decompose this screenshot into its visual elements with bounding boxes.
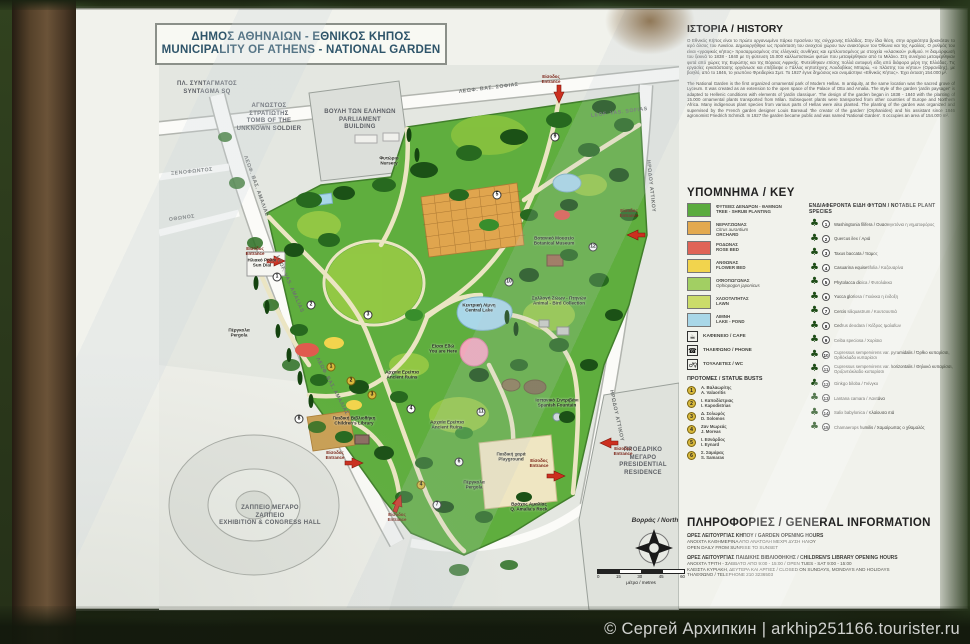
- tree-icon: [809, 364, 820, 374]
- park-information-sign: ΔΗΜΟΣ ΑΘΗΝΑΙΩΝ - ΕΘΝΙΚΟΣ ΚΗΠΟΣ MUNICIPAL…: [74, 8, 968, 609]
- species-number-badge: 13: [822, 394, 830, 402]
- legend-area-list: ΦΥΤΕΙΕΣ ΔΕΝΔΡΩΝ - ΘΑΜΝΩΝTREE - SHRUB PLA…: [687, 203, 805, 327]
- legend-area-row: ΡΟΔΩΝΑΣROSE BED: [687, 241, 805, 255]
- species-row: 5 Phytolacca dioica / Φυτολάκκα: [809, 277, 959, 287]
- bust-number-badge: 1: [687, 386, 696, 395]
- species-number-badge: 7: [822, 307, 830, 315]
- bust-row: 6 Σ. ΣαμάραςS. Samaras: [687, 450, 805, 460]
- busts-list: 1 Α. ΒαλαωρίτηςA. Valaoritis 2 Ι. Καποδί…: [687, 385, 805, 460]
- tree-icon: [809, 350, 820, 360]
- tree-icon: [809, 321, 820, 331]
- key-heading: ΥΠΟΜΝΗΜΑ / KEY: [687, 187, 959, 199]
- tree-icon: [809, 335, 820, 345]
- species-row: 7 Cercis siliquastrum / Κουτσουπιά: [809, 306, 959, 316]
- species-row: 6 Yucca gloriosa / Γιούκκα η ένδοξη: [809, 292, 959, 302]
- species-number-badge: 15: [822, 423, 830, 431]
- tree-icon: [809, 219, 820, 229]
- species-number-badge: 9: [822, 336, 830, 344]
- species-row: 13 Lantana camara / Λαντάνα: [809, 393, 959, 403]
- species-number-badge: 5: [822, 278, 830, 286]
- you-are-here-spot: [460, 338, 488, 366]
- species-number-badge: 8: [822, 322, 830, 330]
- species-number-badge: 1: [822, 220, 830, 228]
- species-row: 1 Washingtonia filifera / Ουασινγκτόνια …: [809, 219, 959, 229]
- legend-amenity-row: ΤΗΛΕΦΩΝΟ / PHONE: [687, 345, 805, 356]
- foliage-edge-right: [940, 0, 970, 644]
- tree-icon: [809, 408, 820, 418]
- species-row: 3 Taxus baccata / Ίταμος: [809, 248, 959, 258]
- scale-tick: 45: [659, 574, 664, 579]
- bust-row: 4 Ζαν ΜωρεάςJ. Moreas: [687, 424, 805, 434]
- bust-row: 1 Α. ΒαλαωρίτηςA. Valaoritis: [687, 385, 805, 395]
- amenity-icon: [687, 345, 698, 356]
- species-row: 14 Salix babylonica / Κλαίουσα ιτιά: [809, 408, 959, 418]
- legend-area-row: ΧΛΟΟΤΑΠΗΤΑΣLAWN: [687, 295, 805, 309]
- species-row: 2 Quercus ilex / Αριά: [809, 234, 959, 244]
- tree-icon: [809, 292, 820, 302]
- amenity-icon: [687, 359, 698, 370]
- species-number-badge: 3: [822, 249, 830, 257]
- general-information-heading: ΠΛΗΡΟΦΟΡΙΕΣ / GENERAL INFORMATION: [687, 517, 955, 529]
- species-number-badge: 11: [822, 365, 830, 373]
- legend-swatch: [687, 295, 711, 309]
- species-number-badge: 12: [822, 380, 830, 388]
- bust-row: 3 Δ. ΣολωμόςD. Solomos: [687, 411, 805, 421]
- history-heading: ΙΣΤΟΡΙΑ / HISTORY: [687, 23, 955, 35]
- photographer-watermark: © Сергей Архипкин | arkhip251166.tourist…: [604, 620, 960, 639]
- legend-swatch: [687, 277, 711, 291]
- tree-icon: [809, 277, 820, 287]
- tree-icon: [809, 422, 820, 432]
- map-scale-bar: 015304560 μέτρα / metres: [597, 569, 685, 585]
- info-panel: ΙΣΤΟΡΙΑ / HISTORY Ο Εθνικός Κήπος είναι …: [683, 19, 959, 607]
- bust-number-badge: 2: [687, 399, 696, 408]
- species-heading: ΕΝΔΙΑΦΕΡΟΝΤΑ ΕΙΔΗ ΦΥΤΩΝ / NOTABLE PLANT …: [809, 203, 959, 215]
- species-row: 9 Ceiba speciosa / Χορίσια: [809, 335, 959, 345]
- map-drawing: [159, 65, 679, 610]
- species-row: 8 Cedrus deodara / Κέδρος Ιμαλαΐων: [809, 321, 959, 331]
- history-paragraph-greek: Ο Εθνικός Κήπος είναι το πρώτο οργανωμέν…: [687, 38, 955, 76]
- scale-tick: 0: [597, 574, 599, 579]
- bust-number-badge: 4: [687, 425, 696, 434]
- key-left-column: ΦΥΤΕΙΕΣ ΔΕΝΔΡΩΝ - ΘΑΜΝΩΝTREE - SHRUB PLA…: [687, 203, 805, 463]
- zappeio-building-shape: [169, 435, 339, 575]
- legend-area-row: ΝΕΡΑΤΖΙΩΝΑΣCitrus aurantiumORCHARD: [687, 221, 805, 237]
- park-map: ΠΛ. ΣΥΝΤΑΓΜΑΤΟΣSYNTAGMA SQΑΓΝΩΣΤΟΣΣΤΡΑΤΙ…: [159, 65, 679, 610]
- legend-area-row: ΟΦΙΟΠΩΓΩΝΑΣOphiopogon japonicus: [687, 277, 805, 291]
- tree-icon: [809, 393, 820, 403]
- tree-icon: [809, 306, 820, 316]
- species-row: 12 Ginkgo biloba / Γκίνγκο: [809, 379, 959, 389]
- species-number-badge: 2: [822, 235, 830, 243]
- bust-row: 2 Ι. ΚαποδίστριαςI. Kapodistrias: [687, 398, 805, 408]
- species-number-badge: 6: [822, 293, 830, 301]
- tree-icon: [809, 379, 820, 389]
- north-label: Βορράς / North: [619, 517, 691, 524]
- sign-title: ΔΗΜΟΣ ΑΘΗΝΑΙΩΝ - ΕΘΝΙΚΟΣ ΚΗΠΟΣ MUNICIPAL…: [155, 23, 447, 65]
- species-row: 15 Chamaerops humilis / Χαμαίρωπας ο χθα…: [809, 422, 959, 432]
- scale-tick: 15: [616, 574, 621, 579]
- scale-ticks: 015304560: [597, 574, 685, 579]
- history-paragraph-english: The National Garden is the first organiz…: [687, 81, 955, 119]
- amenity-icon: [687, 331, 698, 342]
- bust-number-badge: 5: [687, 438, 696, 447]
- bust-row: 5 Ι. ΕϋνάρδοςI. Eynard: [687, 437, 805, 447]
- legend-area-row: ΦΥΤΕΙΕΣ ΔΕΝΔΡΩΝ - ΘΑΜΝΩΝTREE - SHRUB PLA…: [687, 203, 805, 217]
- tree-icon: [809, 234, 820, 244]
- bust-number-badge: 3: [687, 412, 696, 421]
- species-number-badge: 4: [822, 264, 830, 272]
- species-list: 1 Washingtonia filifera / Ουασινγκτόνια …: [809, 219, 959, 432]
- species-number-badge: 10: [822, 351, 830, 359]
- species-number-badge: 14: [822, 409, 830, 417]
- species-row: 4 Casuarina equisetifolia / Καζουαρίνα: [809, 263, 959, 273]
- sign-title-greek: ΔΗΜΟΣ ΑΘΗΝΑΙΩΝ - ΕΘΝΙΚΟΣ ΚΗΠΟΣ: [157, 31, 445, 44]
- species-row: 10 Cupressus sempervirens var. pyramidal…: [809, 350, 959, 360]
- foliage-edge-top: [0, 0, 970, 10]
- scale-tick: 30: [637, 574, 642, 579]
- sign-title-english: MUNICIPALITY OF ATHENS - NATIONAL GARDEN: [157, 44, 445, 57]
- legend-area-row: ΑΝΘΩΝΑΣFLOWER BED: [687, 259, 805, 273]
- key-right-column: ΕΝΔΙΑΦΕΡΟΝΤΑ ΕΙΔΗ ΦΥΤΩΝ / NOTABLE PLANT …: [805, 203, 959, 463]
- photo-of-park-sign: ΔΗΜΟΣ ΑΘΗΝΑΙΩΝ - ΕΘΝΙΚΟΣ ΚΗΠΟΣ MUNICIPAL…: [0, 0, 970, 644]
- legend-swatch: [687, 259, 711, 273]
- scale-unit: μέτρα / metres: [597, 580, 685, 585]
- telephone-line: ΤΗΛΕΦΩΝΟ / TELEPHONE 210 3236503: [687, 572, 955, 578]
- bust-number-badge: 6: [687, 451, 696, 460]
- busts-heading: ΠΡΟΤΟΜΕΣ / STATUE BUSTS: [687, 376, 805, 382]
- legend-swatch: [687, 241, 711, 255]
- legend-amenity-list: ΚΑΦΕΝΕΙΟ / CAFE ΤΗΛΕΦΩΝΟ / PHONE ΤΟΥΑΛΕΤ…: [687, 331, 805, 370]
- history-section: ΙΣΤΟΡΙΑ / HISTORY Ο Εθνικός Κήπος είναι …: [687, 23, 955, 183]
- legend-swatch: [687, 313, 711, 327]
- legend-amenity-row: ΚΑΦΕΝΕΙΟ / CAFE: [687, 331, 805, 342]
- legend-swatch: [687, 203, 711, 217]
- tree-icon: [809, 263, 820, 273]
- legend-area-row: ΛΙΜΝΗLAKE - POND: [687, 313, 805, 327]
- key-section: ΥΠΟΜΝΗΜΑ / KEY ΦΥΤΕΙΕΣ ΔΕΝΔΡΩΝ - ΘΑΜΝΩΝT…: [687, 187, 959, 513]
- legend-amenity-row: ΤΟΥΑΛΕΤΕΣ / WC: [687, 359, 805, 370]
- legend-swatch: [687, 221, 711, 235]
- general-information-section: ΠΛΗΡΟΦΟΡΙΕΣ / GENERAL INFORMATION ΩΡΕΣ Λ…: [687, 517, 955, 578]
- species-row: 11 Cupressus sempervirens var. horizonta…: [809, 364, 959, 374]
- wooden-post: [12, 0, 76, 644]
- tree-icon: [809, 248, 820, 258]
